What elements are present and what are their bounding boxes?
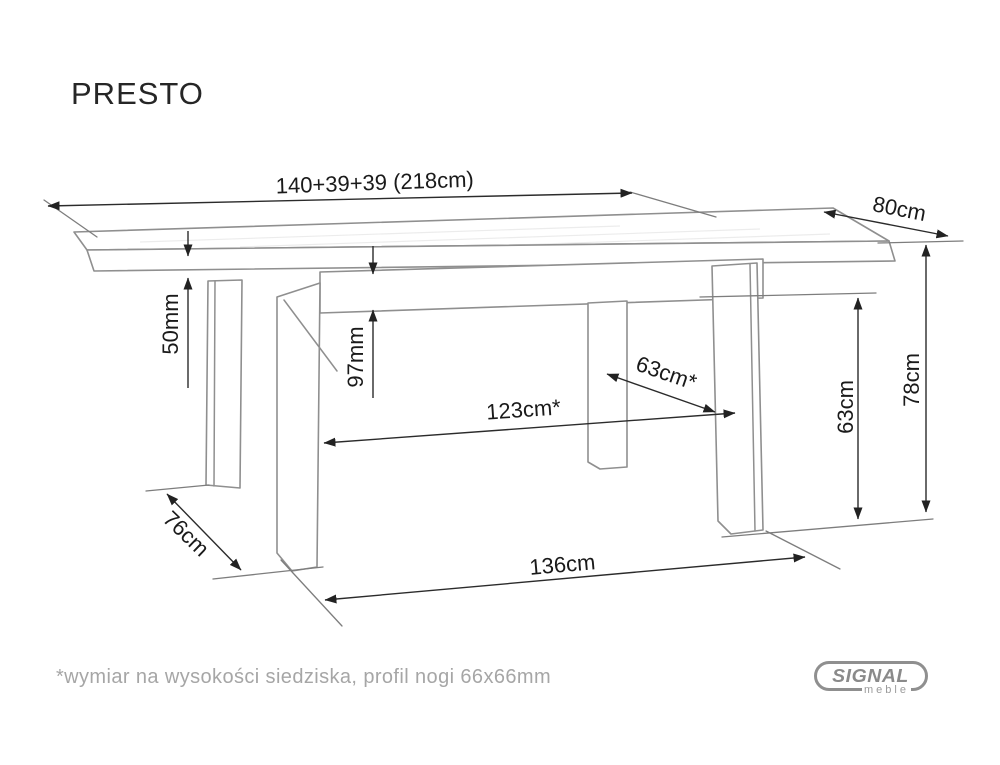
dim-label-apron-height: 97mm: [343, 326, 368, 387]
dimension-sheet: PRESTO: [0, 0, 1000, 765]
dim-label-diagonal-clearance: 63cm*: [633, 351, 701, 395]
leg-rear-left: [206, 280, 242, 488]
dim-label-outer-leg-span: 136cm: [528, 549, 596, 580]
leg-front-left: [277, 283, 320, 571]
dim-label-total-length: 140+39+39 (218cm): [275, 167, 474, 199]
dim-label-under-clearance: 63cm: [833, 380, 858, 434]
dim-label-top-thickness: 50mm: [158, 293, 183, 354]
signal-meble-logo: SIGNAL meble: [814, 661, 934, 701]
footnote: *wymiar na wysokości siedziska, profil n…: [56, 666, 551, 689]
table-dimension-diagram: 140+39+39 (218cm) 80cm 50mm 97mm 63cm* 1…: [0, 0, 1000, 765]
dim-label-top-depth: 80cm: [871, 191, 929, 226]
dim-label-table-height: 78cm: [899, 353, 924, 407]
table-drawing: [74, 208, 895, 571]
leg-front-right: [712, 263, 763, 534]
logo-sub-text: meble: [862, 684, 911, 696]
dim-label-inner-leg-span: 123cm*: [485, 394, 562, 424]
leg-rear-right: [588, 301, 627, 469]
